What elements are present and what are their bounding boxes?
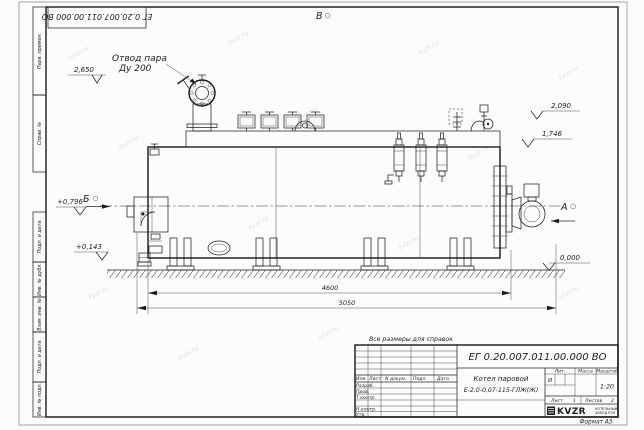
- sheets-label: Листов: [584, 398, 602, 404]
- elevation-ground: 0,000: [543, 254, 590, 271]
- steam-valve: [177, 75, 217, 131]
- col-data: Дата: [436, 376, 449, 382]
- col-podp: Подп.: [413, 376, 427, 382]
- svg-text:2,650: 2,650: [74, 66, 95, 74]
- side-label: Подп. и дата: [37, 221, 43, 254]
- svg-text:kvzr.ru: kvzr.ru: [247, 214, 270, 232]
- corner-stamp-number: ЕГ 0.20.007.011.00.000 ВО: [42, 12, 152, 21]
- col-ndokum: N докум.: [385, 376, 406, 382]
- svg-text:0,000: 0,000: [560, 254, 581, 262]
- svg-text:1,746: 1,746: [542, 130, 563, 138]
- product-designation: Е-2,0-0,07-115-ГЛЖ(Ж): [464, 387, 539, 394]
- drawing-sheet: kvzr.ru kvzr.ru kvzr.ru kvzr.ru kvzr.ru …: [0, 0, 644, 430]
- side-label: Перв. примен.: [37, 33, 43, 69]
- front-fittings: [138, 144, 162, 266]
- svg-text:kvzr.ru: kvzr.ru: [117, 134, 140, 152]
- litera-value: И: [548, 378, 552, 384]
- svg-text:kvzr.ru: kvzr.ru: [67, 44, 90, 62]
- level-gauges: [385, 133, 447, 184]
- row-tkontr: Т.контр.: [356, 395, 376, 401]
- side-stamp-column: Перв. примен. Справ. № Подп. и дата Инв.…: [33, 7, 46, 417]
- titleblock-doc-number: ЕГ 0.20.007.011.00.000 ВО: [469, 352, 607, 363]
- elevation-marks: 2,650 2,090 1,746 +0,796 +0,143 0,000: [56, 66, 590, 271]
- sheet-label: Лист: [550, 398, 563, 404]
- svg-text:+0,143: +0,143: [76, 243, 102, 251]
- row-utv: Утв.: [356, 412, 366, 418]
- svg-text:В: В: [316, 11, 323, 22]
- elevation-right-lower: 1,746: [522, 130, 572, 147]
- scale-value: 1:20: [600, 384, 614, 391]
- logo-tagline-2: ЗАВОД РЭП: [595, 411, 616, 415]
- elevation-right-upper: 2,090: [531, 102, 580, 119]
- sheets-count: 2: [611, 398, 614, 404]
- dim-boiler-length: 4600: [322, 284, 339, 292]
- logo-text: KVZR: [557, 407, 586, 417]
- svg-text:kvzr.ru: kvzr.ru: [557, 284, 580, 302]
- elevation-left-upper: +0,796: [56, 198, 86, 215]
- callout-line1: Отвод пара: [112, 54, 167, 64]
- svg-text:kvzr.ru: kvzr.ru: [557, 64, 580, 82]
- col-list: Лист: [368, 376, 381, 382]
- svg-text:kvzr.ru: kvzr.ru: [317, 324, 340, 342]
- safety-valves: [238, 112, 324, 131]
- sheet-number: 1: [573, 398, 576, 404]
- side-label: Подп. и дата: [37, 341, 43, 374]
- svg-text:А: А: [560, 202, 568, 213]
- svg-text:kvzr.ru: kvzr.ru: [417, 39, 440, 57]
- side-label: Справ. №: [37, 122, 43, 145]
- scale-header: Масштаб: [596, 369, 618, 375]
- dim-overall-length: 5050: [339, 299, 356, 307]
- svg-text:kvzr.ru: kvzr.ru: [177, 344, 200, 362]
- company-logo: KVZR КОТЕЛЬНЫЙ ЗАВОД РЭП: [547, 406, 618, 417]
- row-prov: Пров.: [356, 389, 369, 395]
- callout-line2: Ду 200: [118, 64, 152, 74]
- view-b-label: Б: [83, 194, 110, 209]
- row-nkontr: Н.контр.: [356, 407, 377, 413]
- ground-line: [107, 270, 565, 278]
- side-label: Взам. инв. №: [37, 298, 43, 331]
- reference-note: Все размеры для справок: [369, 336, 453, 343]
- format-label: Формат А3: [579, 420, 612, 426]
- col-izm: Изм.: [356, 376, 367, 382]
- title-block: ЕГ 0.20.007.011.00.000 ВО Котел паровой …: [355, 345, 618, 418]
- elevation-left-lower: +0,143: [74, 243, 108, 260]
- svg-text:kvzr.ru: kvzr.ru: [397, 234, 420, 252]
- svg-text:kvzr.ru: kvzr.ru: [227, 29, 250, 47]
- svg-text:kvzr.ru: kvzr.ru: [297, 104, 320, 122]
- drum-fittings: [449, 105, 493, 131]
- lit-header: Лит.: [554, 369, 566, 375]
- row-razrab: Разраб.: [356, 383, 374, 389]
- side-label: Инв. № дубл.: [37, 263, 43, 296]
- svg-text:Б: Б: [83, 194, 90, 205]
- view-v-label: В: [316, 11, 330, 22]
- watermark-layer: kvzr.ru kvzr.ru kvzr.ru kvzr.ru kvzr.ru …: [67, 29, 580, 392]
- view-a-label: А: [551, 202, 575, 223]
- mass-header: Масса: [578, 369, 593, 375]
- corner-stamp: ЕГ 0.20.007.011.00.000 ВО: [42, 7, 152, 28]
- svg-text:2,090: 2,090: [551, 102, 572, 110]
- view-labels: Б А В: [83, 11, 575, 223]
- side-label: Инв. № подл.: [37, 383, 43, 416]
- svg-text:+0,796: +0,796: [57, 198, 83, 206]
- elevation-valve-top: 2,650: [68, 66, 106, 83]
- burner-assembly: [506, 184, 545, 232]
- svg-text:kvzr.ru: kvzr.ru: [87, 284, 110, 302]
- product-name: Котел паровой: [474, 375, 529, 383]
